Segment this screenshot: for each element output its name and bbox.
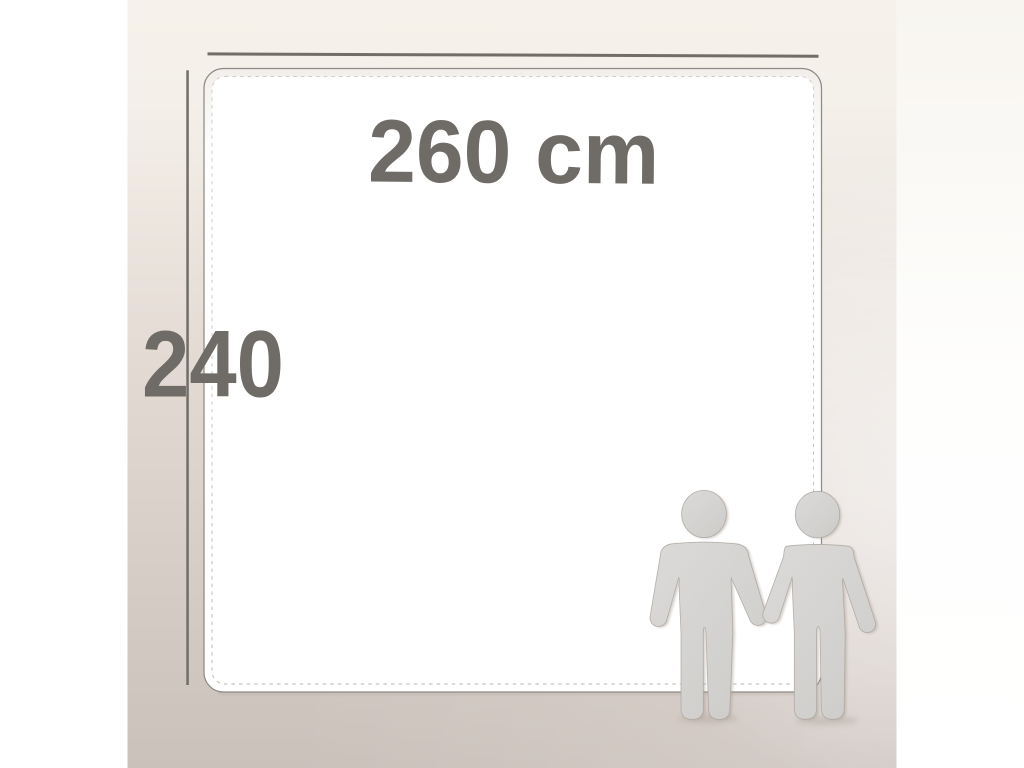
svg-text:240: 240 (142, 312, 284, 418)
svg-text:260 cm: 260 cm (368, 101, 660, 203)
